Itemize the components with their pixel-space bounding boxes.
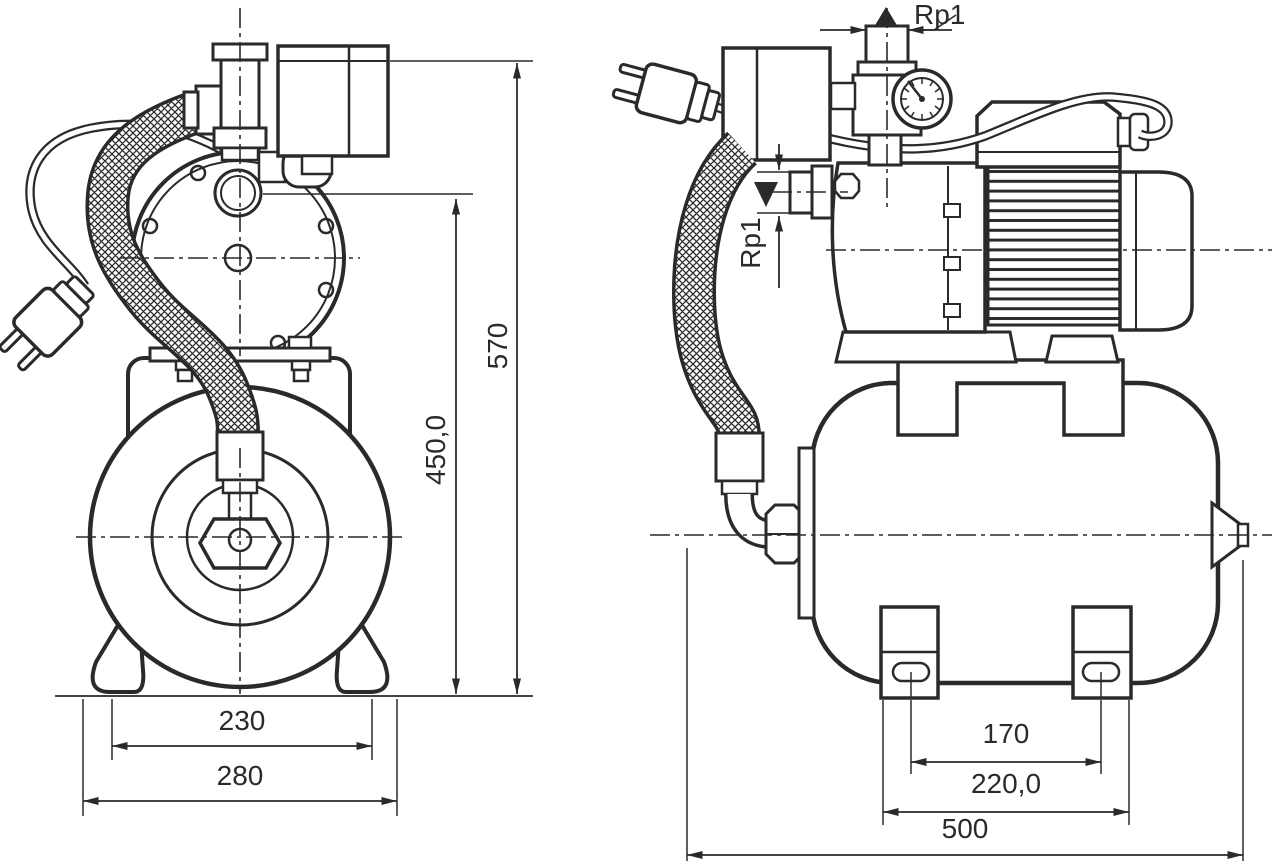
dim-discharge-port: Rp1	[820, 0, 965, 30]
pressure-switch-side	[723, 48, 830, 160]
fan-cover	[1120, 172, 1192, 330]
braided-hose-side	[694, 148, 763, 494]
pressure-gauge	[893, 70, 951, 128]
dim-label-overall-height: 570	[482, 323, 513, 370]
dim-label-feet-spacing: 230	[219, 705, 266, 736]
flow-direction-icon	[874, 7, 898, 27]
motor-fins	[988, 167, 1120, 325]
dim-label-port-height: 450,0	[420, 415, 451, 485]
dim-label-feet-width: 220,0	[971, 768, 1041, 799]
cable-gland	[1118, 118, 1130, 146]
tank-flange-plate	[799, 448, 814, 618]
side-view: Rp1 Rp1 170 220,0 500	[611, 0, 1272, 861]
dim-label-suction-port: Rp1	[735, 217, 766, 268]
flow-direction-icon	[754, 182, 778, 207]
front-view: 570 450,0 230 280	[0, 8, 533, 816]
drawing-canvas: 570 450,0 230 280	[0, 0, 1280, 865]
dim-label-overall-length: 500	[942, 813, 989, 844]
dim-label-discharge-port: Rp1	[914, 0, 965, 30]
priming-plug	[835, 174, 859, 198]
pump-base	[836, 332, 1016, 362]
dim-label-base-width: 280	[217, 760, 264, 791]
technical-drawing: 570 450,0 230 280	[0, 0, 1280, 865]
pressure-switch-front	[278, 46, 388, 174]
dim-label-foot-slot-spacing: 170	[983, 718, 1030, 749]
power-plug-side	[611, 56, 723, 131]
tank-side	[812, 383, 1218, 683]
